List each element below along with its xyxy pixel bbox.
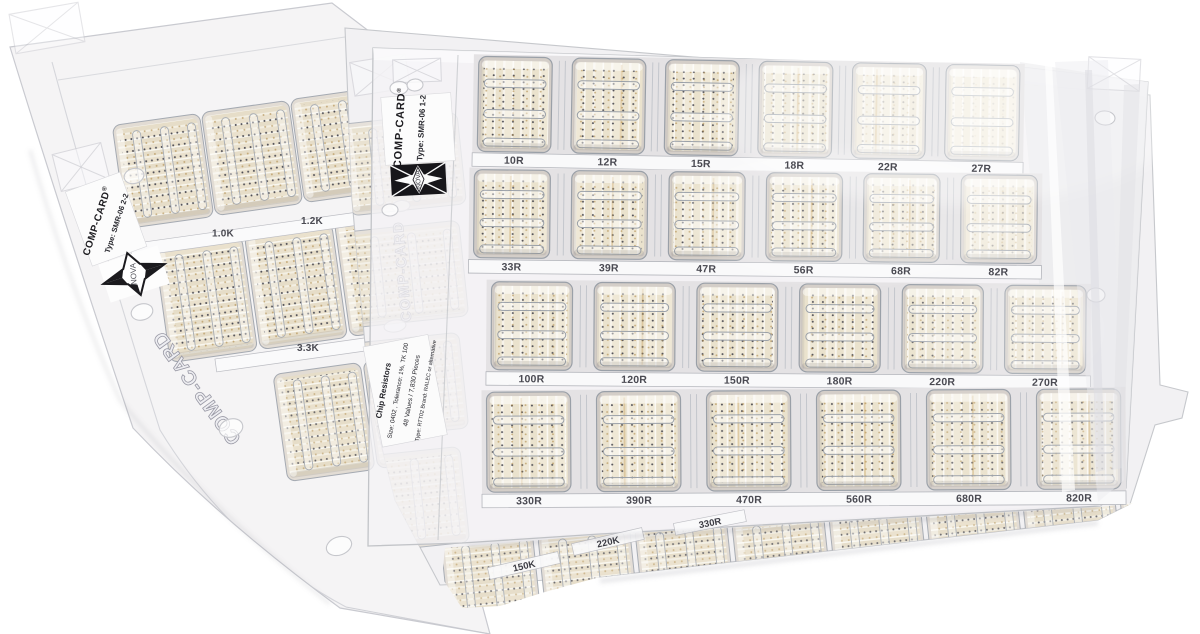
svg-text:820R: 820R (1066, 492, 1092, 504)
svg-text:10R: 10R (504, 155, 524, 167)
svg-text:33R: 33R (501, 261, 521, 273)
svg-text:47R: 47R (696, 263, 716, 275)
svg-text:22R: 22R (878, 161, 898, 173)
svg-text:3.3K: 3.3K (297, 343, 320, 354)
svg-text:12R: 12R (597, 156, 617, 168)
svg-text:150R: 150R (724, 375, 750, 387)
svg-text:330R: 330R (516, 495, 542, 507)
svg-text:560R: 560R (846, 494, 872, 506)
svg-text:220R: 220R (929, 376, 955, 388)
svg-text:68R: 68R (891, 265, 911, 277)
svg-text:390R: 390R (626, 495, 652, 507)
svg-text:120R: 120R (621, 374, 647, 386)
svg-text:18R: 18R (784, 160, 804, 172)
svg-text:1.2K: 1.2K (301, 216, 324, 227)
svg-text:680R: 680R (956, 493, 982, 505)
svg-text:NOVA: NOVA (129, 262, 139, 285)
svg-text:NOVA: NOVA (415, 169, 423, 189)
svg-text:27R: 27R (971, 163, 991, 175)
svg-text:56R: 56R (794, 264, 814, 276)
svg-text:82R: 82R (988, 266, 1008, 278)
svg-text:1.0K: 1.0K (212, 229, 235, 240)
svg-text:39R: 39R (599, 262, 619, 274)
svg-text:15R: 15R (691, 158, 711, 170)
svg-text:270R: 270R (1032, 377, 1058, 389)
svg-text:470R: 470R (736, 494, 762, 506)
svg-text:180R: 180R (827, 375, 853, 387)
svg-text:100R: 100R (518, 373, 544, 385)
